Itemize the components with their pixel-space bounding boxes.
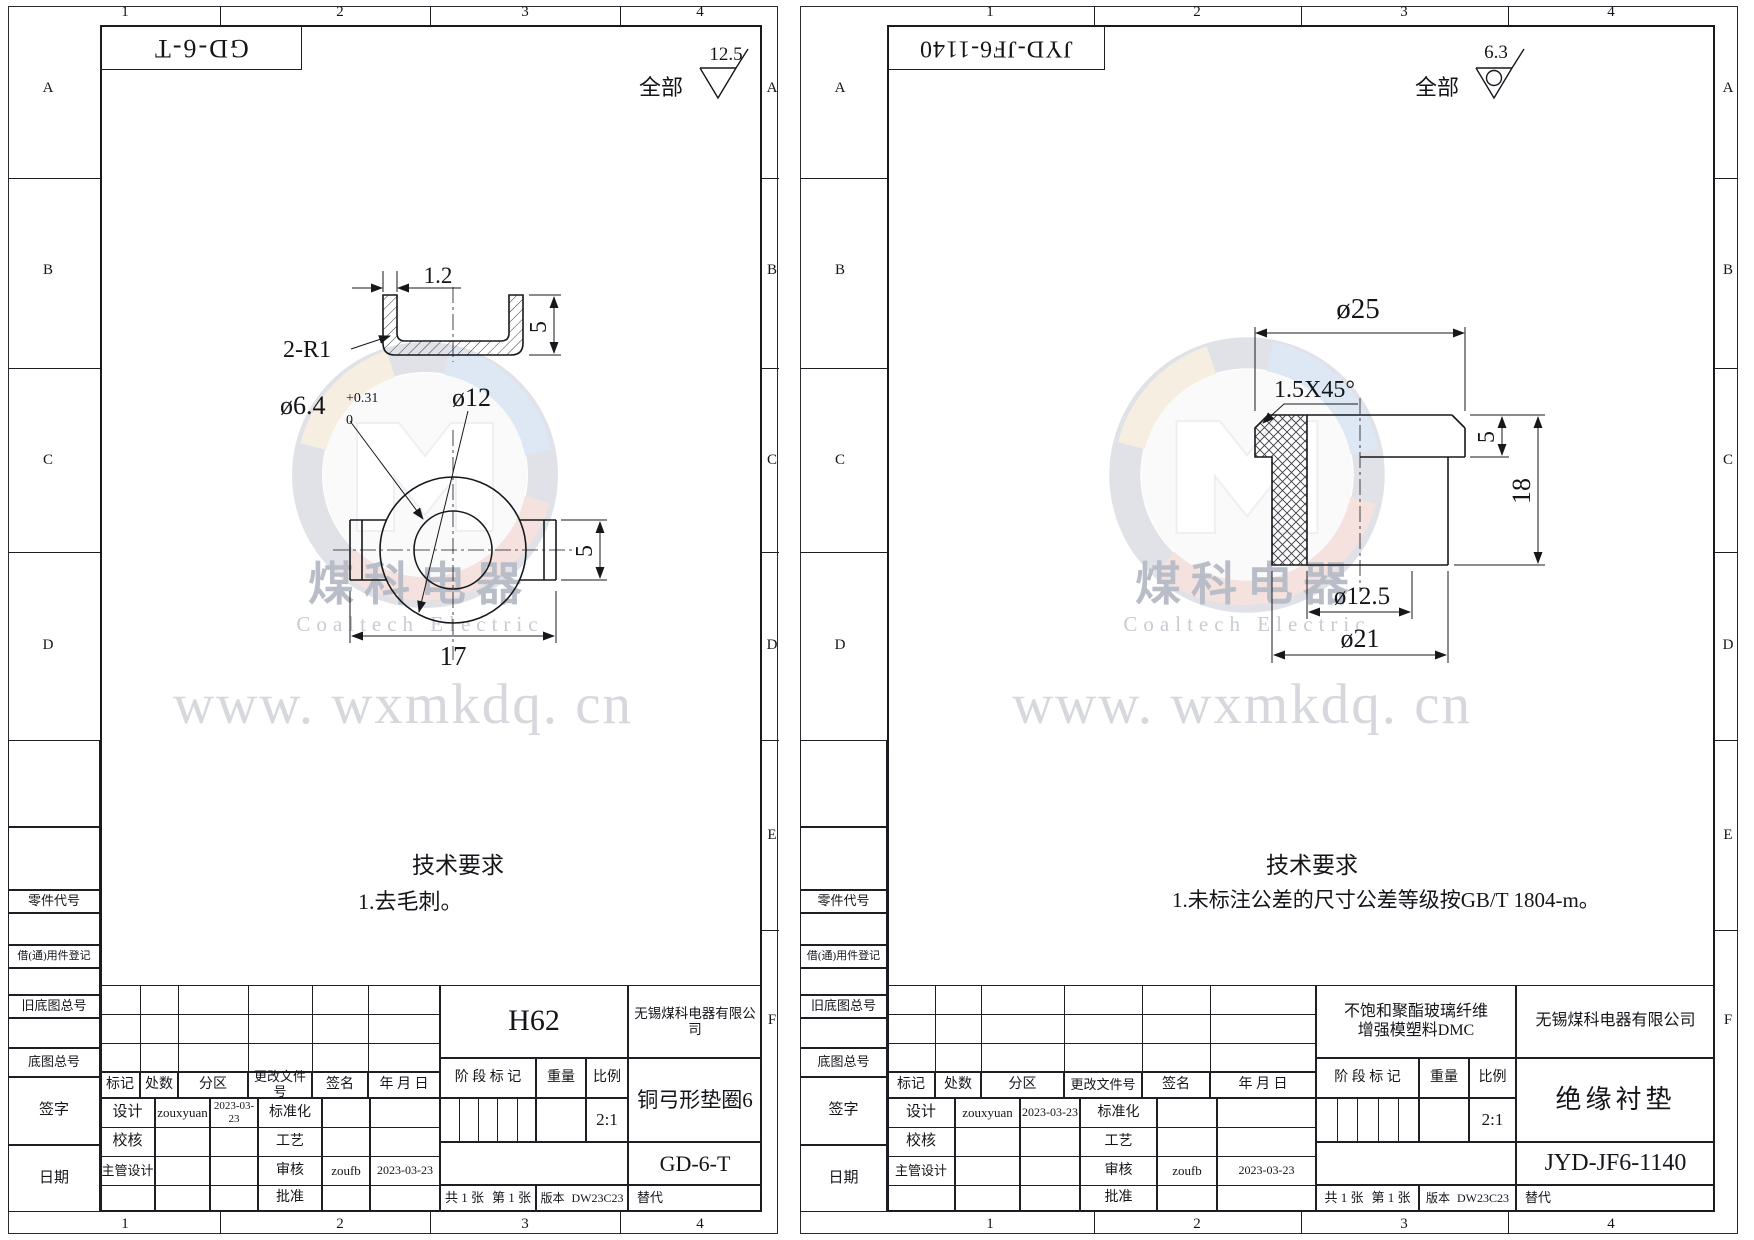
grid-line — [312, 985, 313, 1072]
weight-value — [1419, 1098, 1469, 1142]
col-change-doc: 更改文件号 — [1064, 1072, 1142, 1098]
col-ymd: 年 月 日 — [1210, 1072, 1316, 1098]
empty-cell — [887, 1185, 955, 1212]
col-count: 处数 — [140, 1072, 178, 1098]
dim-body-diameter: ø21 — [1341, 624, 1380, 653]
empty-cell — [1316, 1142, 1516, 1185]
material-line-1: 不饱和聚酯玻璃纤维 — [1344, 1003, 1488, 1021]
empty-cell — [370, 1127, 440, 1157]
grid-line — [981, 985, 982, 1072]
stage-boxes — [440, 1098, 536, 1142]
total-sheets: 共 1 张 — [1324, 1191, 1363, 1206]
revision-block — [100, 985, 440, 1072]
design-label: 设计 — [887, 1098, 955, 1128]
grid-line — [517, 1098, 518, 1142]
scale-value: 2:1 — [1469, 1098, 1516, 1142]
sheet-index: 第 1 张 — [1372, 1191, 1411, 1206]
designer-name: zouxyuan — [155, 1098, 210, 1128]
part-name-cell: 绝缘衬垫 — [1516, 1058, 1715, 1142]
grid-line — [1210, 985, 1211, 1072]
empty-cell — [1020, 1127, 1080, 1157]
version-label: 版本 — [540, 1192, 564, 1206]
empty-cell — [210, 1156, 258, 1186]
dim-hole-tol-dn: 0 — [346, 413, 353, 428]
grid-line — [100, 1014, 440, 1015]
grid-line — [459, 1098, 460, 1142]
check-label: 校核 — [887, 1127, 955, 1157]
empty-cell — [955, 1185, 1020, 1212]
audit-label: 审核 — [258, 1156, 322, 1186]
scale-label: 比例 — [586, 1058, 628, 1098]
dim-tab-height: 5 — [572, 545, 598, 557]
col-sign: 签名 — [312, 1072, 368, 1098]
dim-chamfer: 1.5X45° — [1274, 377, 1355, 403]
chief-design-label: 主管设计 — [100, 1156, 155, 1186]
empty-cell — [155, 1185, 210, 1212]
empty-cell — [1217, 1185, 1316, 1212]
check-label: 校核 — [100, 1127, 155, 1157]
material-cell: 不饱和聚酯玻璃纤维 增强模塑料DMC — [1316, 985, 1516, 1058]
dim-radius: 2-R1 — [283, 337, 331, 363]
sheet-count-cell: 共 1 张 第 1 张 — [1316, 1185, 1419, 1212]
part-name-cell: 铜弓形垫圈6 — [628, 1058, 762, 1142]
col-change-doc: 更改文件号 — [248, 1072, 312, 1098]
design-label: 设计 — [100, 1098, 155, 1128]
grid-line — [140, 985, 141, 1072]
version-cell: 版本 DW23C23 — [536, 1185, 628, 1212]
scale-value: 2:1 — [586, 1098, 628, 1142]
standardize-label: 标准化 — [1080, 1098, 1157, 1128]
company-cell: 无锡煤科电器有限公司 — [628, 985, 762, 1058]
empty-cell — [1020, 1185, 1080, 1212]
empty-cell — [322, 1098, 370, 1128]
empty-cell — [322, 1185, 370, 1212]
external-half — [1307, 415, 1465, 565]
grid-line — [368, 985, 369, 1072]
grid-line — [478, 1098, 479, 1142]
version-value: DW23C23 — [1457, 1192, 1509, 1206]
dim-outer: ø12 — [452, 383, 491, 412]
grid-line — [1357, 1098, 1358, 1142]
grid-line — [1378, 1098, 1379, 1142]
sheet-left: 煤科电器 Coaltech Electric www. wxmkdq. cn 1… — [0, 0, 788, 1240]
grid-line — [887, 1043, 1316, 1044]
weight-label: 重量 — [536, 1058, 586, 1098]
empty-cell — [1020, 1156, 1080, 1186]
approve-label: 批准 — [258, 1185, 322, 1212]
designer-name: zouxyuan — [955, 1098, 1020, 1128]
version-cell: 版本 DW23C23 — [1419, 1185, 1516, 1212]
dim-hole-tol-up: +0.31 — [346, 391, 378, 406]
scale-label: 比例 — [1469, 1058, 1516, 1098]
dim-thickness: 1.2 — [424, 263, 453, 288]
material-cell: H62 — [440, 985, 628, 1058]
col-zone: 分区 — [178, 1072, 248, 1098]
dim-total-height: 18 — [1507, 478, 1536, 504]
grid-line — [1337, 1098, 1338, 1142]
grid-line — [1398, 1098, 1399, 1142]
sectioned-half — [1255, 415, 1307, 565]
company-cell: 无锡煤科电器有限公司 — [1516, 985, 1715, 1058]
auditor-name: zoufb — [322, 1156, 370, 1186]
grid-line — [100, 1043, 440, 1044]
sheet-right: 煤科电器 Coaltech Electric www. wxmkdq. cn 1… — [792, 0, 1754, 1240]
weight-value — [536, 1098, 586, 1142]
empty-cell — [210, 1127, 258, 1157]
col-count: 处数 — [935, 1072, 981, 1098]
dim-hole-diameter: ø12.5 — [1334, 583, 1390, 610]
grid-line — [935, 985, 936, 1072]
auditor-name: zoufb — [1157, 1156, 1217, 1186]
dim-flange-height: 5 — [1474, 431, 1500, 443]
empty-cell — [100, 1185, 155, 1212]
dim-flange-diameter: ø25 — [1336, 293, 1380, 325]
col-ymd: 年 月 日 — [368, 1072, 440, 1098]
chief-design-label: 主管设计 — [887, 1156, 955, 1186]
stage-boxes — [1316, 1098, 1419, 1142]
dim-width: 17 — [440, 641, 467, 671]
empty-cell — [1217, 1127, 1316, 1157]
empty-cell — [440, 1142, 628, 1185]
weight-label: 重量 — [1419, 1058, 1469, 1098]
empty-cell — [210, 1185, 258, 1212]
standardize-label: 标准化 — [258, 1098, 322, 1128]
empty-cell — [370, 1098, 440, 1128]
grid-line — [178, 985, 179, 1072]
empty-cell — [370, 1185, 440, 1212]
version-value: DW23C23 — [572, 1192, 624, 1206]
empty-cell — [322, 1127, 370, 1157]
empty-cell — [155, 1156, 210, 1186]
audit-date: 2023-03-23 — [370, 1156, 440, 1186]
col-mark: 标记 — [887, 1072, 935, 1098]
empty-cell — [1157, 1185, 1217, 1212]
process-label: 工艺 — [258, 1127, 322, 1157]
total-sheets: 共 1 张 — [445, 1191, 484, 1206]
stage-mark-label: 阶 段 标 记 — [1316, 1058, 1419, 1098]
approve-label: 批准 — [1080, 1185, 1157, 1212]
dim-hole: ø6.4 — [280, 391, 326, 420]
empty-cell — [155, 1127, 210, 1157]
design-date: 2023-03-23 — [210, 1098, 258, 1128]
grid-line — [497, 1098, 498, 1142]
audit-label: 审核 — [1080, 1156, 1157, 1186]
audit-date: 2023-03-23 — [1217, 1156, 1316, 1186]
substitute-cell: 替代 — [628, 1185, 762, 1212]
col-mark: 标记 — [100, 1072, 140, 1098]
empty-cell — [1157, 1127, 1217, 1157]
drawing-no-cell: JYD-JF6-1140 — [1516, 1142, 1715, 1185]
col-sign: 签名 — [1142, 1072, 1210, 1098]
drawing-scan: 煤科电器 Coaltech Electric www. wxmkdq. cn 1… — [0, 0, 1754, 1240]
drawing-no-cell: GD-6-T — [628, 1142, 762, 1185]
sheet-index: 第 1 张 — [492, 1191, 531, 1206]
version-label: 版本 — [1426, 1192, 1450, 1206]
stage-mark-label: 阶 段 标 记 — [440, 1058, 536, 1098]
design-date: 2023-03-23 — [1020, 1098, 1080, 1128]
material-line-2: 增强模塑料DMC — [1358, 1022, 1474, 1040]
grid-line — [1064, 985, 1065, 1072]
grid-line — [248, 985, 249, 1072]
empty-cell — [955, 1127, 1020, 1157]
empty-cell — [1157, 1098, 1217, 1128]
substitute-cell: 替代 — [1516, 1185, 1715, 1212]
sheet-count-cell: 共 1 张 第 1 张 — [440, 1185, 536, 1212]
process-label: 工艺 — [1080, 1127, 1157, 1157]
empty-cell — [955, 1156, 1020, 1186]
dim-lip-height: 5 — [526, 321, 552, 333]
grid-line — [887, 1014, 1316, 1015]
grid-line — [1142, 985, 1143, 1072]
revision-block — [887, 985, 1316, 1072]
col-zone: 分区 — [981, 1072, 1064, 1098]
empty-cell — [1217, 1098, 1316, 1128]
